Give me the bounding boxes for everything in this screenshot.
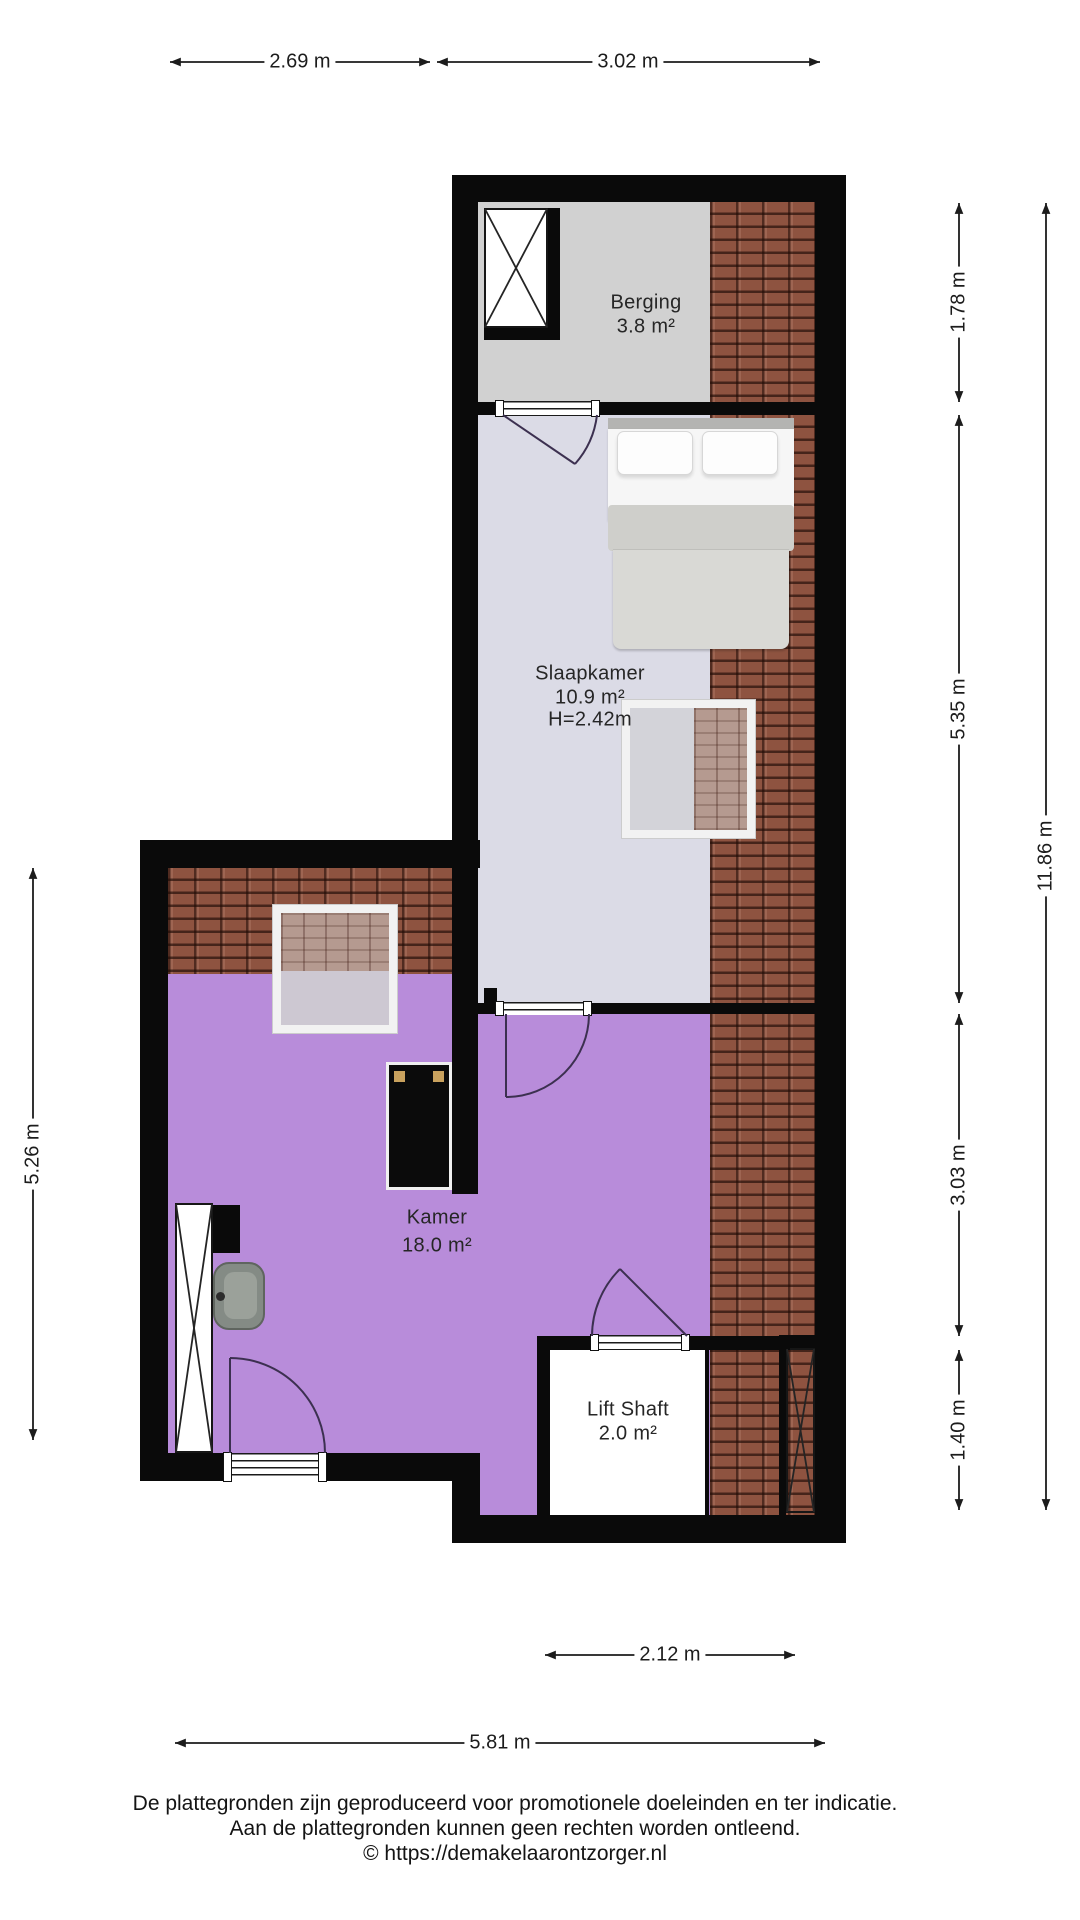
shaft-box-kamer [175,1203,213,1453]
wall-lift-right-line [705,1350,709,1515]
shaft-wall-bottom [484,328,560,340]
bed-pillow-left [617,431,693,475]
wall-kamer-left [140,840,168,1481]
room-height-slaapkamer: H=2.42m [548,709,632,732]
shaft-box-bottom-right [786,1348,815,1513]
skylight-glass-over-tiles [694,708,747,830]
room-label-slaapkamer: Slaapkamer [535,663,645,686]
dim-label-right-slaapkamer: 5.35 m [948,673,971,744]
room-label-lift-shaft: Lift Shaft [587,1399,669,1422]
skylight-window-slaapkamer [622,700,755,838]
wall-shaft-br-left [779,1348,786,1515]
stove [386,1062,452,1190]
dim-label-top-left: 2.69 m [264,51,335,74]
disclaimer-line-1: De plattegronden zijn geproduceerd voor … [0,1791,1030,1816]
bed-headboard [608,418,794,429]
disclaimer-line-3: © https://demakelaarontzorger.nl [0,1841,1030,1866]
chimney-block [210,1205,240,1253]
wall-column-right [815,175,846,1543]
washbasin-tap-icon [216,1292,225,1301]
bed-duvet [613,549,789,649]
door-sill-berging [497,401,598,416]
wall-lift-left [537,1336,550,1515]
skylight-glass-over-tiles [281,913,389,971]
dim-label-right-lift: 1.40 m [948,1394,971,1465]
disclaimer: De plattegronden zijn geproduceerd voor … [0,1791,1030,1866]
dim-label-bottom-total: 5.81 m [464,1732,535,1755]
skylight-glass [630,708,694,830]
washbasin [213,1262,265,1330]
door-sill-lift [592,1335,688,1350]
dim-label-left: 5.26 m [22,1118,45,1189]
floorplan-canvas: Berging 3.8 m² Slaapkamer 10.9 m² H=2.42… [0,0,1080,1920]
dim-label-bottom-lift: 2.12 m [634,1644,705,1667]
wall-kamer-top [140,840,480,868]
room-area-berging: 3.8 m² [617,316,675,339]
disclaimer-line-2: Aan de plattegronden kunnen geen rechten… [0,1816,1030,1841]
stove-knob-right [433,1071,444,1082]
wall-column-left [452,175,478,1014]
bed-duvet-fold [608,505,794,551]
roof-tiles-berging [710,202,815,402]
double-bed [608,418,794,648]
wall-column-bottom [452,1515,846,1543]
wall-column-left-stub [452,1014,478,1194]
room-area-kamer: 18.0 m² [402,1235,472,1258]
door-sill-kamer-entry [225,1453,325,1481]
door-sill-slaapkamer-kamer [497,1002,590,1015]
skylight-window-kamer [273,905,397,1033]
room-label-berging: Berging [610,292,681,315]
wall-column-top [452,175,846,202]
dim-label-top-right: 3.02 m [592,51,663,74]
dim-label-right-berging: 1.78 m [948,266,971,337]
dim-label-right-total: 11.86 m [1035,816,1058,897]
skylight-glass [281,971,389,1025]
shaft-box-berging [484,208,548,328]
washbasin-bowl [224,1272,257,1319]
room-area-lift-shaft: 2.0 m² [599,1423,657,1446]
bed-pillow-right [702,431,778,475]
room-label-kamer: Kamer [407,1207,467,1230]
shaft-wall-right [548,208,560,340]
stove-knob-left [394,1071,405,1082]
dim-label-right-kamer: 3.03 m [948,1139,971,1210]
wall-shaft-br-top [779,1335,815,1348]
room-area-slaapkamer: 10.9 m² [555,687,625,710]
